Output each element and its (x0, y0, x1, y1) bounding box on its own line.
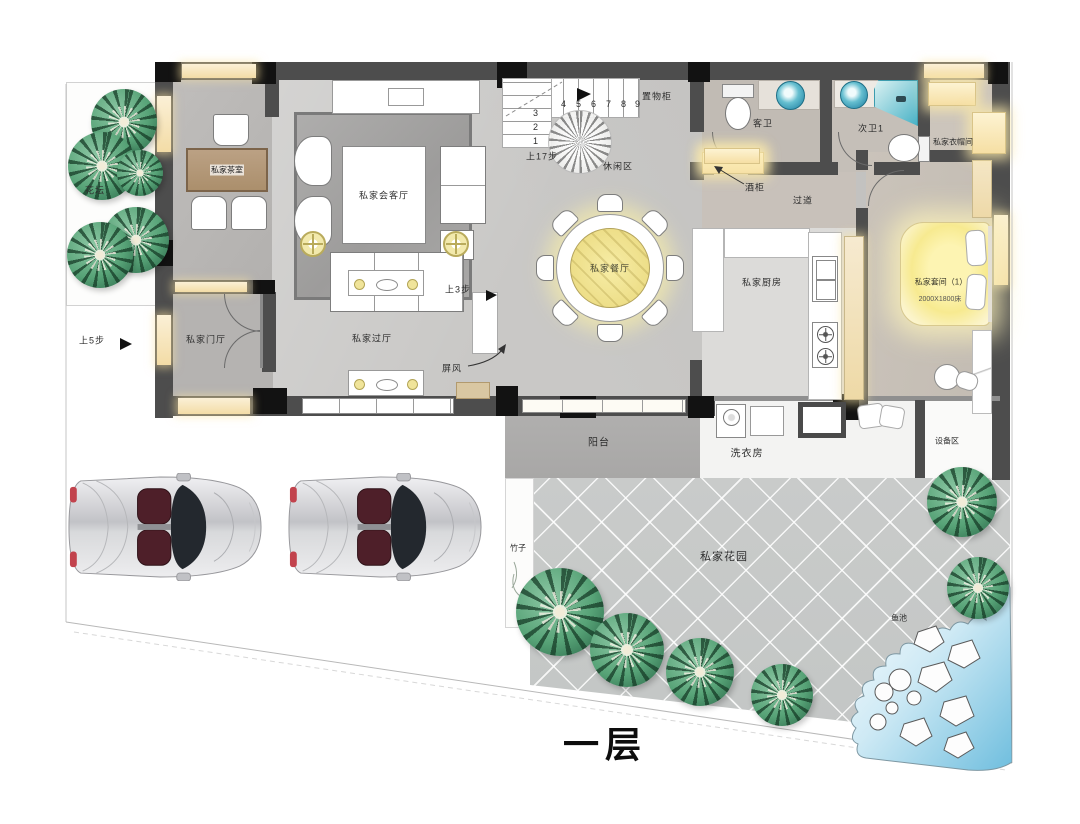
window (182, 64, 256, 78)
chair (597, 194, 623, 212)
wardrobe (972, 112, 1006, 154)
wardrobe (972, 160, 992, 218)
window (157, 315, 171, 365)
decor-medallion (443, 231, 469, 257)
label-suite-bed: 2000X1800床 (919, 294, 962, 304)
label-pond: 鱼池 (891, 613, 907, 624)
column (688, 62, 710, 82)
label-suite: 私家套间（1） (915, 277, 967, 288)
tree (590, 613, 664, 687)
window (924, 64, 984, 78)
label-wine-cabinet: 酒柜 (745, 181, 765, 194)
kitchen-counter (692, 228, 724, 332)
tree (751, 664, 813, 726)
label-garden: 私家花园 (700, 548, 748, 564)
stair-number: 6 (591, 99, 597, 109)
tree (666, 638, 734, 706)
tree (947, 557, 1009, 619)
wall (915, 400, 925, 478)
ornament (354, 279, 365, 290)
column (253, 280, 275, 294)
door-leaf (260, 294, 263, 368)
stair-flight (502, 78, 552, 148)
label-up3: 上3步 (445, 283, 471, 296)
stove (812, 322, 838, 368)
wardrobe (928, 82, 976, 106)
stair-number: 1 (533, 136, 539, 146)
laundry-basket (878, 404, 905, 430)
window (522, 399, 686, 413)
sink-basin (816, 280, 836, 300)
car (287, 473, 483, 581)
window (994, 215, 1008, 285)
ornament (354, 379, 365, 390)
stair-number: 3 (533, 108, 539, 118)
column (988, 62, 1008, 84)
car (67, 473, 263, 581)
console-cabinet (348, 270, 424, 296)
toilet (725, 97, 751, 130)
label-guest-bath: 客卫 (753, 117, 773, 130)
ornament (407, 379, 418, 390)
stair-number: 9 (635, 99, 641, 109)
washbasin (776, 81, 805, 110)
label-hall: 私家过厅 (352, 332, 392, 345)
headboard (988, 226, 992, 322)
label-equipment: 设备区 (935, 436, 959, 447)
washbasin (840, 81, 868, 109)
console-cabinet (348, 370, 424, 396)
stair-number: 8 (621, 99, 627, 109)
stair-number: 7 (606, 99, 612, 109)
window (178, 398, 250, 414)
label-cloakroom: 私家衣帽间 (933, 137, 973, 148)
armchair (294, 136, 332, 186)
tree (67, 222, 133, 288)
dryer (750, 406, 784, 436)
sofa (440, 146, 486, 224)
label-up17: 上17步 (526, 150, 558, 163)
column (688, 396, 714, 418)
label-kitchen: 私家厨房 (742, 276, 782, 289)
bath-cabinet (704, 148, 760, 164)
stair-number: 5 (576, 99, 582, 109)
toilet (888, 134, 920, 162)
washing-machine (716, 404, 746, 438)
up5-arrow-icon (120, 338, 132, 350)
ornament (376, 379, 398, 391)
chair (536, 255, 554, 281)
chair (666, 255, 684, 281)
column (253, 388, 287, 414)
pillow (965, 229, 987, 266)
chair (231, 196, 267, 230)
wardrobe (972, 330, 992, 414)
kitchen-sink (812, 256, 838, 302)
label-living: 私家会客厅 (359, 189, 409, 202)
label-corridor: 过道 (793, 194, 813, 207)
decor-medallion (300, 231, 326, 257)
column (496, 386, 518, 416)
toilet-tank (722, 84, 754, 98)
shower-head (896, 96, 906, 102)
ornament (376, 279, 398, 291)
burner (817, 348, 834, 365)
tall-cabinet (844, 236, 864, 400)
wall (262, 292, 276, 372)
label-dining: 私家餐厅 (590, 262, 630, 275)
label-storage-cabinet: 置物柜 (642, 90, 672, 103)
service-window (798, 402, 846, 438)
label-flower-bed: 花坛 (85, 184, 105, 197)
kitchen-counter (724, 228, 810, 258)
stair-number: 4 (561, 99, 567, 109)
floor-plan: 花坛 私家茶室 私家会客厅 上5步 私家门厅 私家过厅 上3步 屏风 上17步 … (0, 0, 1080, 824)
tree (927, 467, 997, 537)
window (175, 282, 247, 292)
ornament (407, 279, 418, 290)
wall (820, 62, 832, 172)
floor-title: 一层 (520, 716, 690, 768)
label-laundry: 洗衣房 (731, 445, 764, 460)
screen-panel (472, 292, 498, 354)
tv (388, 88, 424, 106)
label-bamboo: 竹子 (510, 543, 526, 554)
chair (213, 114, 249, 146)
washer-door (723, 409, 740, 426)
label-foyer: 私家门厅 (186, 333, 226, 346)
window (157, 96, 171, 152)
label-second-bath: 次卫1 (858, 122, 884, 135)
sink-basin (816, 260, 836, 280)
shoe-cabinet (456, 382, 490, 399)
corridor-floor (702, 172, 856, 228)
window (302, 398, 454, 414)
label-screen: 屏风 (442, 362, 462, 375)
chair (597, 324, 623, 342)
column (155, 62, 181, 82)
pillow (965, 273, 987, 310)
label-up5: 上5步 (79, 334, 105, 347)
stair-number: 2 (533, 122, 539, 132)
label-tea-room: 私家茶室 (210, 165, 244, 176)
stair-flight (548, 78, 640, 118)
chair (191, 196, 227, 230)
label-leisure: 休闲区 (603, 160, 633, 173)
burner (817, 326, 834, 343)
label-balcony: 阳台 (588, 434, 610, 449)
tree (117, 150, 163, 196)
